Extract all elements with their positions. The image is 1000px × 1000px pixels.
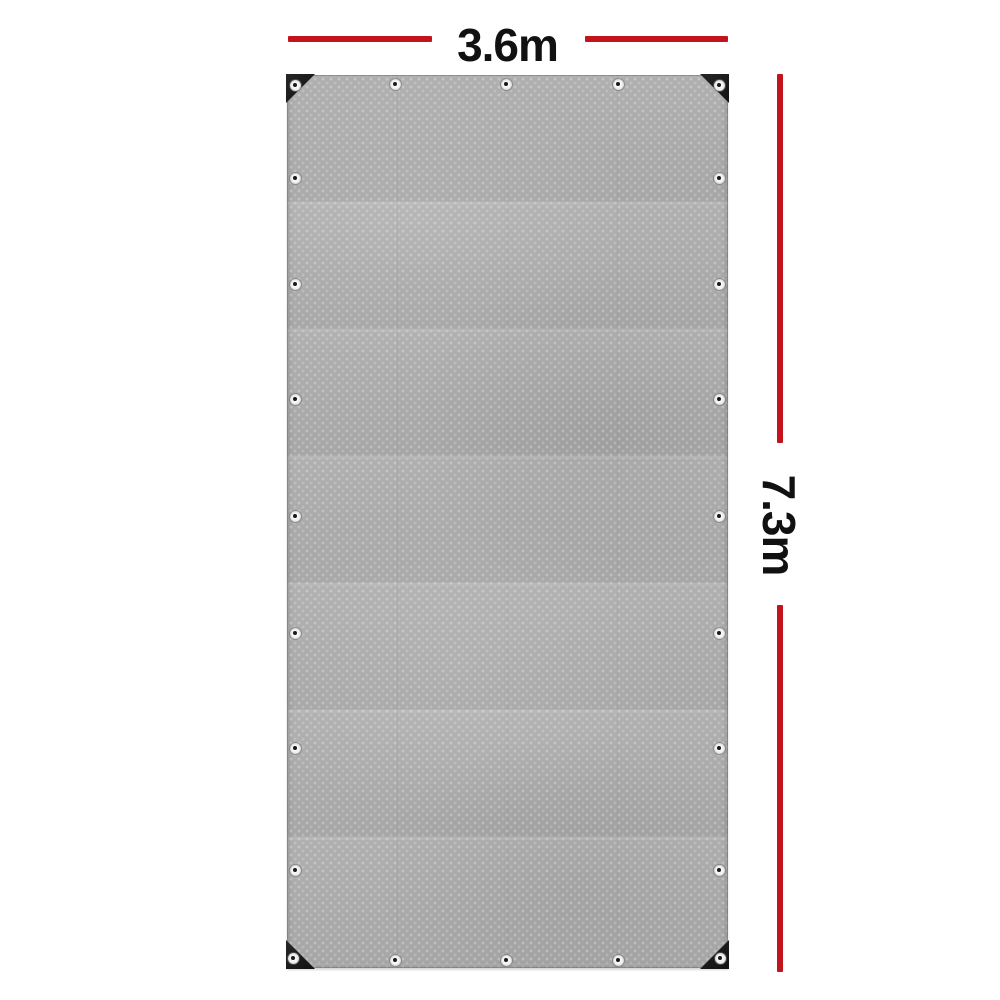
eyelet <box>714 173 725 184</box>
eyelet <box>501 955 512 966</box>
eyelet <box>290 279 301 290</box>
height-dimension-line-upper <box>777 74 783 443</box>
eyelet <box>715 953 726 964</box>
eyelet <box>288 953 299 964</box>
eyelet <box>501 79 512 90</box>
tarp <box>287 75 728 968</box>
eyelet <box>714 511 725 522</box>
eyelet <box>290 865 301 876</box>
height-dimension-label: 7.3m <box>756 475 802 576</box>
eyelet <box>714 865 725 876</box>
eyelet <box>714 628 725 639</box>
eyelet <box>290 394 301 405</box>
eyelet <box>714 743 725 754</box>
width-dimension-line-right <box>585 36 728 42</box>
product-dimension-image: 3.6m 7.3m <box>0 0 1000 1000</box>
eyelet <box>390 955 401 966</box>
eyelet <box>290 743 301 754</box>
eyelet <box>714 279 725 290</box>
eyelet <box>714 394 725 405</box>
eyelet <box>613 955 624 966</box>
width-dimension-label: 3.6m <box>437 22 578 68</box>
eyelet <box>390 79 401 90</box>
eyelet <box>290 80 301 91</box>
eyelet <box>290 173 301 184</box>
eyelet <box>613 79 624 90</box>
eyelet <box>714 80 725 91</box>
eyelet <box>290 628 301 639</box>
width-dimension-line-left <box>288 36 432 42</box>
height-dimension-line-lower <box>777 605 783 972</box>
eyelet <box>290 511 301 522</box>
